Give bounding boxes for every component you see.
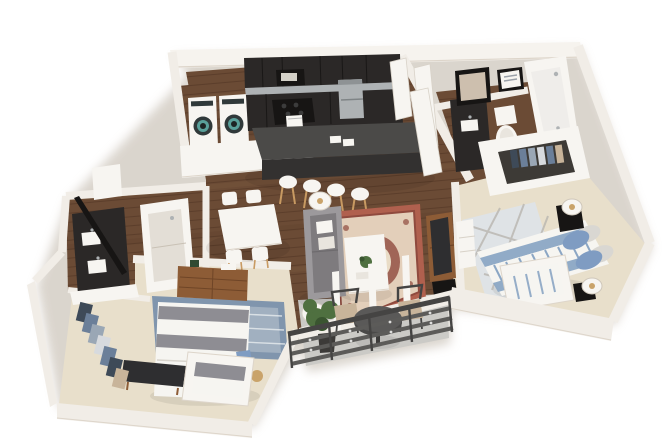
vanity-sink (87, 259, 106, 274)
wall-art (497, 67, 524, 92)
bedroom-left-window-seat (182, 352, 254, 406)
decor-box (190, 260, 199, 267)
floor-plan-svg (0, 0, 670, 447)
sofa-pillow (316, 220, 333, 234)
sofa-pillow (318, 236, 335, 250)
bedside-accent (251, 370, 263, 382)
kitchen-island (245, 122, 435, 194)
linen-cabinet (92, 164, 122, 200)
decor-tray (221, 264, 236, 270)
bar-stool (327, 184, 345, 197)
dryer (219, 94, 249, 146)
coffee-table (340, 234, 392, 302)
vanity-mirror (455, 67, 491, 106)
bar-stool (279, 176, 297, 189)
floor-plan-image (0, 0, 670, 447)
wall-left-wing-west-upper (62, 196, 66, 252)
bar-stool (303, 180, 321, 193)
floor-lamp (309, 192, 331, 210)
bar-stool (351, 188, 369, 201)
microwave (276, 69, 305, 86)
white-dresser (456, 219, 476, 269)
vanity-sink (461, 119, 479, 131)
washer (188, 96, 218, 148)
refrigerator (338, 79, 364, 119)
